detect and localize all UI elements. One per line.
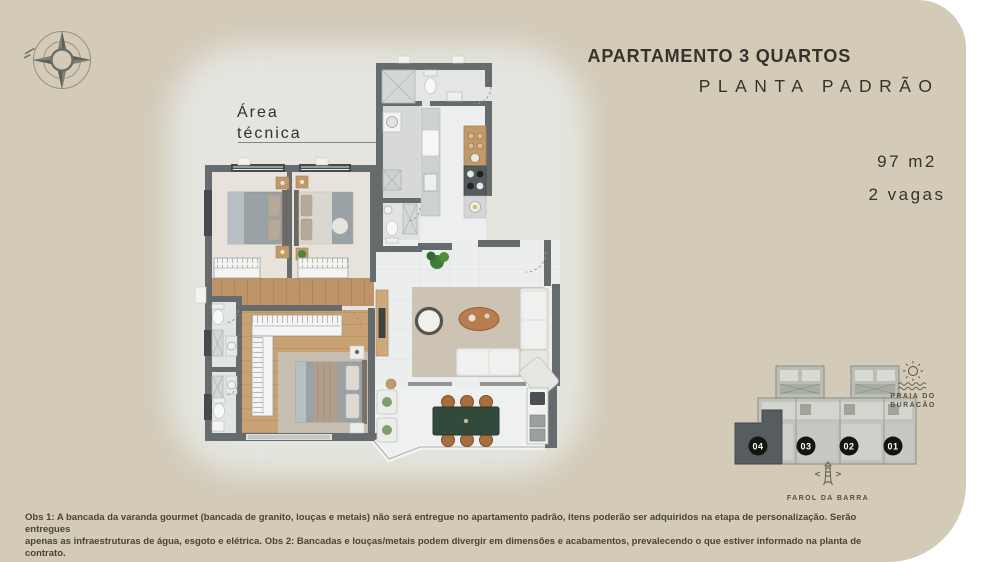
facade-box-3 bbox=[398, 56, 410, 63]
sink bbox=[447, 92, 462, 101]
toilet bbox=[213, 310, 224, 325]
window-side-1 bbox=[204, 190, 212, 236]
kitchen-counter-right bbox=[464, 126, 486, 166]
page: Área técnica bbox=[0, 0, 1000, 562]
plant-small bbox=[298, 250, 306, 258]
lighthouse-icon bbox=[815, 462, 841, 485]
bed-1 bbox=[228, 190, 287, 246]
toilet bbox=[214, 404, 225, 419]
unit-badge-04-label: 04 bbox=[752, 442, 763, 452]
key-plan: 04 03 02 01 bbox=[728, 356, 963, 506]
unit-badge-03-label: 03 bbox=[800, 442, 811, 452]
kitchen-sink bbox=[424, 174, 437, 191]
sink bbox=[228, 381, 236, 389]
compass-icon bbox=[24, 22, 100, 98]
sink bbox=[384, 206, 392, 214]
landmark-praia-do-buracao: PRAIA DO BURACÃO bbox=[881, 392, 945, 410]
fridge bbox=[422, 130, 439, 156]
cabinet bbox=[212, 421, 224, 431]
sun-waves-icon bbox=[898, 361, 926, 390]
facade-box-1 bbox=[238, 158, 250, 165]
unit-info: 97 m2 2 vagas bbox=[832, 152, 982, 205]
toilet bbox=[387, 221, 398, 236]
dining-table bbox=[433, 407, 499, 435]
gourmet-counter bbox=[527, 388, 548, 444]
disclaimer: Obs 1: A bancada da varanda gourmet (ban… bbox=[25, 512, 877, 560]
unit-area: 97 m2 bbox=[832, 152, 982, 172]
landmark-beach-line2: BURACÃO bbox=[881, 401, 945, 410]
window-side-3 bbox=[204, 394, 212, 420]
kitchen-counter-sink bbox=[464, 196, 486, 218]
wardrobe-2 bbox=[298, 258, 348, 278]
facade-box-4 bbox=[452, 56, 464, 63]
landmark-farol-da-barra: FAROL DA BARRA bbox=[778, 494, 878, 503]
wardrobe-1 bbox=[214, 258, 260, 278]
armchair bbox=[417, 309, 442, 334]
page-subtitle: PLANTA PADRÃO bbox=[560, 76, 940, 97]
ac-unit bbox=[195, 287, 206, 303]
disclaimer-line2: apenas as infraestruturas de água, esgot… bbox=[25, 536, 877, 560]
window-side-2 bbox=[204, 330, 212, 356]
stove bbox=[464, 166, 486, 196]
tv-panel bbox=[376, 290, 388, 356]
coffee-table bbox=[459, 308, 499, 331]
compass-north-tick bbox=[24, 48, 35, 58]
unit-parking: 2 vagas bbox=[832, 185, 982, 205]
landmark-lighthouse-label: FAROL DA BARRA bbox=[778, 494, 878, 503]
shower bbox=[382, 70, 415, 103]
unit-badge-02-label: 02 bbox=[843, 442, 854, 452]
page-title: APARTAMENTO 3 QUARTOS bbox=[560, 46, 851, 67]
nightstand bbox=[350, 423, 364, 433]
kitchen-counter-left bbox=[421, 108, 440, 216]
bed-2 bbox=[294, 190, 353, 246]
facade-box-2 bbox=[316, 158, 328, 165]
title-block: APARTAMENTO 3 QUARTOS PLANTA PADRÃO bbox=[560, 46, 932, 97]
disclaimer-line1: Obs 1: A bancada da varanda gourmet (ban… bbox=[25, 512, 877, 536]
unit-badge-01-label: 01 bbox=[887, 442, 898, 452]
window-master bbox=[246, 434, 332, 440]
sink bbox=[228, 342, 236, 350]
master-bed bbox=[296, 360, 367, 424]
side-table bbox=[386, 379, 396, 389]
landmark-beach-line1: PRAIA DO bbox=[881, 392, 945, 401]
toilet bbox=[424, 70, 437, 94]
floor-plan bbox=[185, 52, 570, 467]
keyplan-roof-block-1 bbox=[776, 366, 824, 398]
